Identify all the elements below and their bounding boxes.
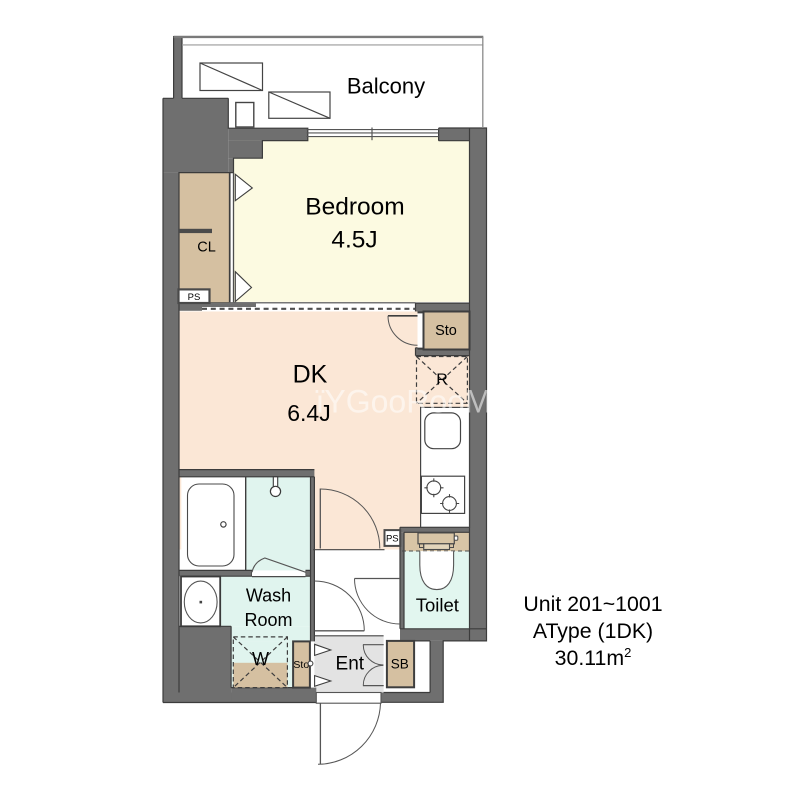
svg-text:Toilet: Toilet xyxy=(416,595,459,616)
svg-text:ïYGooRooM: ïYGooRooM xyxy=(316,384,492,420)
svg-text:Wash: Wash xyxy=(246,586,291,606)
svg-text:AType (1DK): AType (1DK) xyxy=(533,619,653,643)
svg-text:4.5J: 4.5J xyxy=(331,227,377,254)
svg-text:Sto: Sto xyxy=(293,659,309,671)
svg-text:Room: Room xyxy=(244,610,292,630)
svg-text:PS: PS xyxy=(188,292,201,303)
svg-text:Sto: Sto xyxy=(435,323,457,339)
svg-text:Ent: Ent xyxy=(336,654,365,675)
svg-text:W: W xyxy=(252,649,269,669)
svg-text:Unit 201~1001: Unit 201~1001 xyxy=(523,592,662,616)
svg-text:30.11m2: 30.11m2 xyxy=(555,645,632,670)
svg-text:SB: SB xyxy=(391,657,409,672)
svg-text:PS: PS xyxy=(386,534,399,545)
svg-text:CL: CL xyxy=(197,240,216,256)
svg-text:Balcony: Balcony xyxy=(347,74,425,99)
svg-text:Bedroom: Bedroom xyxy=(305,194,404,221)
